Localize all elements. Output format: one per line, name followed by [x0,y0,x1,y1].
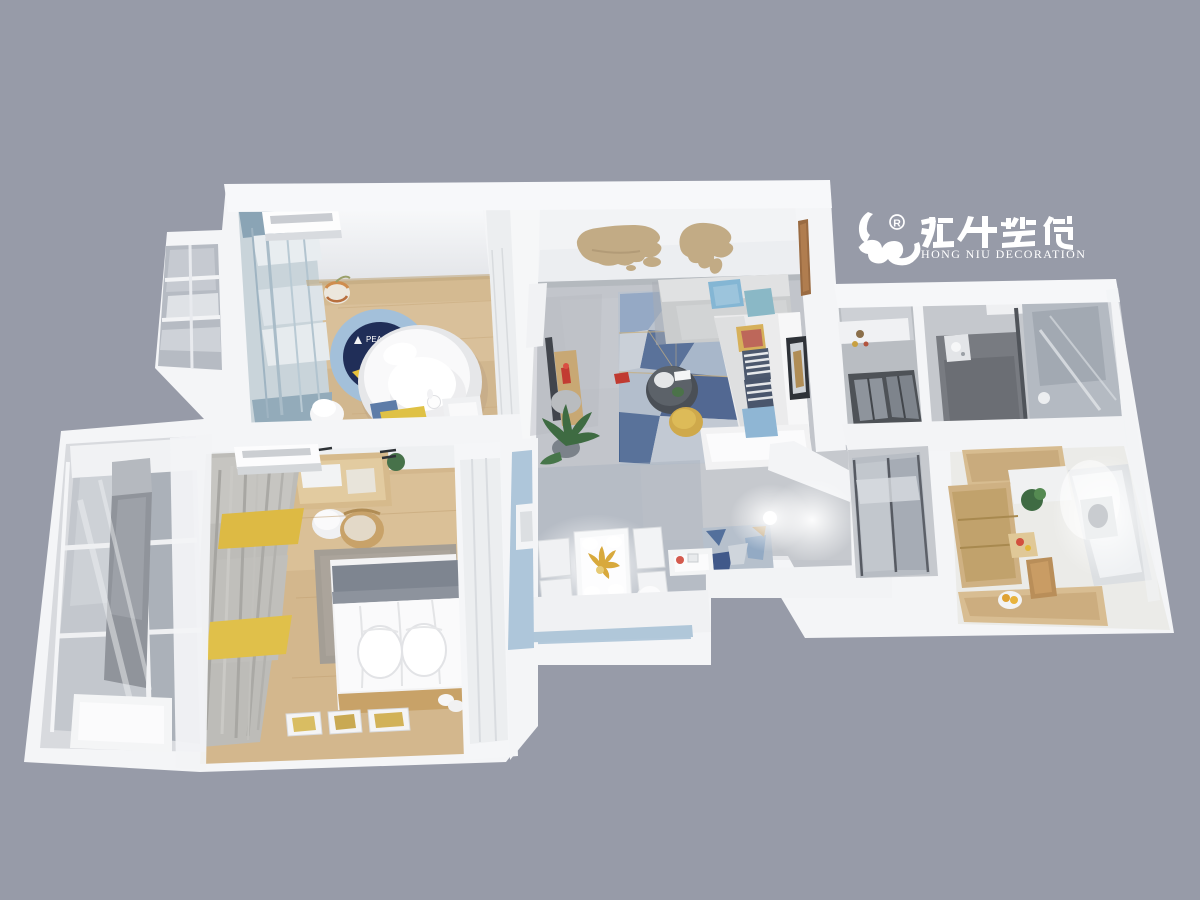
svg-text:HONG NIU DECORATION: HONG NIU DECORATION [921,247,1086,261]
svg-text:R: R [893,218,901,230]
